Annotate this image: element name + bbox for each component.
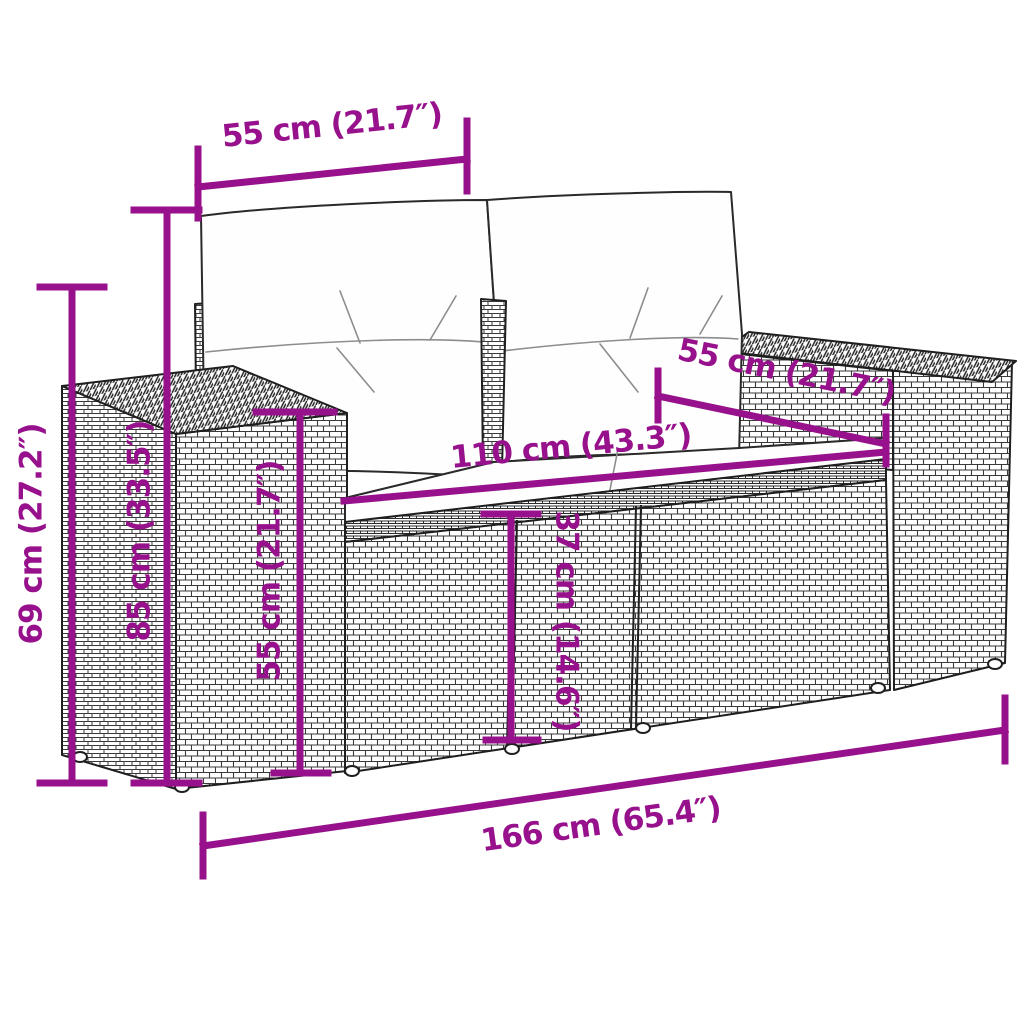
backrest-top-width-label: 55 cm (21.7″) — [220, 96, 444, 155]
dimension-backrest-top-width: 55 cm (21.7″) — [198, 96, 467, 218]
right-armrest-front-face — [893, 362, 1012, 690]
left-armrest — [62, 366, 347, 789]
total-height-label: 69 cm (27.2″) — [14, 423, 50, 644]
sofa-line-art — [62, 192, 1016, 792]
armrest-height-label: 55 cm (21.7″) — [252, 460, 288, 681]
backrest-height-label: 85 cm (33.5″) — [122, 420, 158, 641]
sofa-dimension-drawing: 55 cm (21.7″) 69 cm (27.2″) 85 cm (33.5″… — [0, 0, 1024, 1024]
seat-height-label: 37 cm (14.6″) — [549, 510, 585, 731]
left-armrest-side-face — [62, 386, 176, 789]
product-dimension-diagram: 55 cm (21.7″) 69 cm (27.2″) 85 cm (33.5″… — [0, 0, 1024, 1024]
